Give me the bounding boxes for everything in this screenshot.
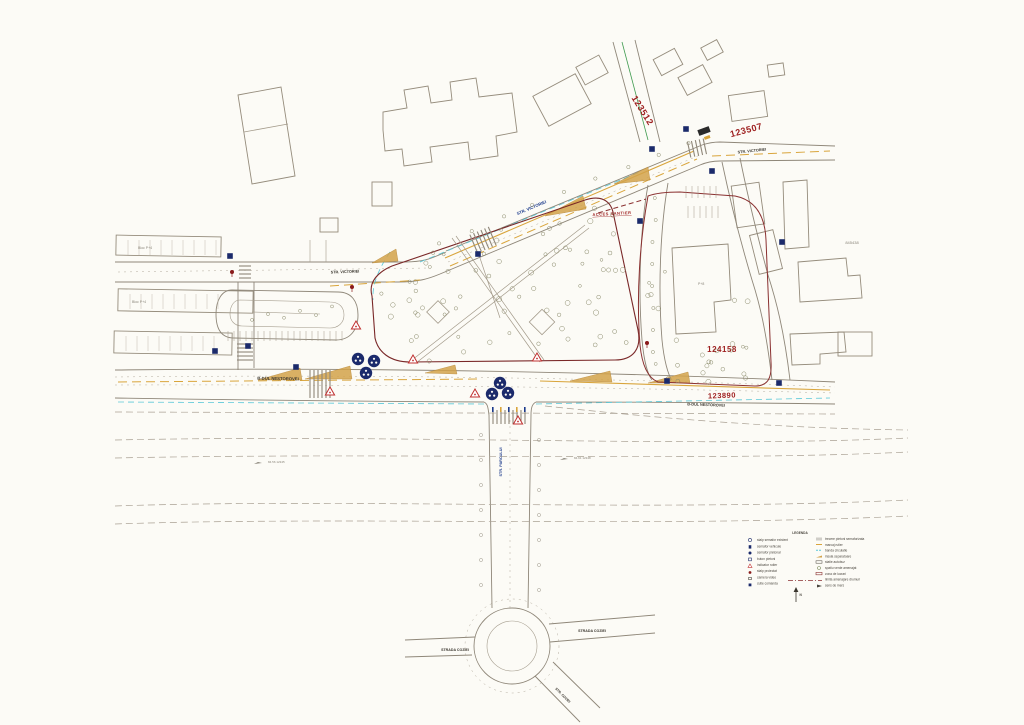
- legend-item-label: statie autobuz: [825, 560, 845, 564]
- direction-arrow-icon: [817, 585, 822, 588]
- bloc-label-b: Bloc P+4: [132, 300, 146, 304]
- street-label-nestorovei-east: B-DUL NESTOROVEI: [687, 402, 725, 407]
- park-diamond-1: [427, 301, 450, 324]
- signal-box-icon: [683, 126, 689, 132]
- control-box-icon: [749, 584, 752, 587]
- elevation-arrow-west: [254, 462, 262, 464]
- parcel-label-123512: 123512: [630, 94, 656, 127]
- bus-loop: [216, 290, 358, 340]
- marker-icon: [645, 341, 649, 348]
- street-label-coziei-east: STRADA COZIEI: [578, 629, 606, 633]
- park-diamond-2: [529, 309, 554, 334]
- street-label-victoriei-diagonal: STR. VICTORIEI: [516, 199, 547, 216]
- legend-item-label: stalp semafor existent: [757, 538, 788, 542]
- vehicle-signal-icon: [749, 545, 752, 548]
- signal-box-icon: [245, 343, 251, 349]
- legend-item-label: sens de mers: [825, 583, 845, 587]
- new-pole-icon: [749, 571, 752, 574]
- legend-item-label: stalp proiectat: [757, 569, 777, 573]
- warning-triangle-icon: [351, 321, 360, 329]
- signal-box-icon: [212, 348, 218, 354]
- island-icon: [816, 556, 822, 558]
- legend-title: LEGENDA: [792, 531, 808, 535]
- parcel-label-123890: 123890: [708, 391, 736, 401]
- street-label-coziei-se: STR. COZIEI: [554, 687, 571, 704]
- street-label-victoriei-left: STR. VICTORIEI: [331, 270, 360, 275]
- signal-box-icon: [227, 253, 233, 259]
- buildings-layer: [114, 40, 872, 365]
- bloc-label-c: P+8: [698, 282, 704, 286]
- signal-head-icon: [360, 367, 372, 379]
- elevation-arrow-east: [560, 458, 568, 460]
- signal-head-icon: [494, 377, 506, 389]
- warning-triangle-icon: [408, 355, 417, 363]
- street-label-nestorovei-west: B-DUL NESTOROVEI: [257, 376, 299, 382]
- parcel-label-845438: 845438: [845, 240, 859, 245]
- north-label: N: [800, 593, 803, 597]
- park-layer: [371, 192, 771, 386]
- legend-item-label: cutie comanda: [757, 582, 778, 586]
- legend-left-column: stalp semafor existent semafor vehicule …: [748, 538, 788, 586]
- map-canvas: 123512 123507 124158 123890 ACCES SANTIE…: [0, 0, 1024, 725]
- buildings-right: [731, 180, 872, 365]
- elevation-label-west: 84.56 12345: [268, 460, 285, 464]
- signal-box-icon: [649, 146, 655, 152]
- signal-head-icon: [502, 387, 514, 399]
- signal-box-icon: [664, 378, 670, 384]
- signal-box-icon: [779, 239, 785, 245]
- signal-box-icon: [475, 251, 481, 257]
- signal-box-icon: [709, 168, 715, 174]
- park-boundary: [371, 198, 639, 362]
- signal-head-icon: [368, 355, 380, 367]
- green-space-icon: [818, 567, 821, 570]
- building-inner-line: [244, 124, 288, 132]
- signal-head-icon: [352, 353, 364, 365]
- road-sign-icon: [748, 564, 752, 567]
- works-boundary: [638, 192, 771, 386]
- elevation-label-east: 84.61 12348: [574, 456, 591, 460]
- north-arrow: N: [794, 587, 803, 602]
- building-small-2: [320, 218, 338, 232]
- camera-icon: [749, 578, 752, 580]
- warning-triangle-icon: [325, 387, 334, 395]
- building-topcenter: [383, 78, 517, 166]
- park-paths: [412, 225, 589, 363]
- signal-head-icon: [486, 388, 498, 400]
- crosswalk-icon: [817, 538, 821, 541]
- ped-button-icon: [749, 558, 752, 561]
- bus-stop-icon: [816, 561, 822, 563]
- works-zone-icon: [816, 572, 822, 574]
- stop-bar: [697, 126, 710, 136]
- building-topleft: [238, 87, 295, 184]
- symbols-layer: [126, 126, 785, 591]
- legend-item-label: trecere pietoni semaforizata: [825, 537, 865, 541]
- legend-item-label: zona de lucrari: [825, 572, 846, 576]
- legend-item-label: indicator rutier: [757, 563, 778, 567]
- legend-right-column: trecere pietoni semaforizata marcaj ruti…: [788, 537, 865, 588]
- crosswalk: [239, 266, 251, 278]
- ped-signal-icon: [749, 552, 752, 555]
- crosswalk: [688, 139, 707, 158]
- legend-item-label: semafor vehicule: [757, 544, 781, 548]
- lane-arrow: [704, 135, 711, 140]
- legend-item-label: marcaj rutier: [825, 543, 844, 547]
- building-block-center: [672, 244, 731, 334]
- signal-box-icon: [776, 380, 782, 386]
- street-label-parcului: STR. PARCULUI: [499, 447, 503, 476]
- building-small: [372, 182, 392, 206]
- legend-item-label: semafor pietonal: [757, 551, 781, 555]
- signal-box-icon: [637, 218, 643, 224]
- legend-item-label: spatiu verde amenajat: [825, 566, 856, 570]
- buildings-topright-cluster: [533, 40, 785, 127]
- legend-item-label: limita amenajare drumuri: [825, 578, 860, 582]
- legend-item-label: buton pietoni: [757, 557, 776, 561]
- signal-box-icon: [293, 364, 299, 370]
- site-plan-page: 123512 123507 124158 123890 ACCES SANTIE…: [0, 0, 1024, 725]
- legend: LEGENDA stalp semafor existent semafor v…: [748, 531, 865, 602]
- warning-triangle-icon: [470, 389, 479, 397]
- legend-item-label: banda circulatie: [825, 549, 848, 553]
- legend-item-label: camera video: [757, 575, 776, 579]
- parcel-label-123507: 123507: [729, 121, 764, 139]
- signal-pole-icon: [748, 538, 751, 541]
- street-label-coziei-west: STRADA COZIEI: [441, 648, 469, 652]
- buildings-left-strips: [114, 235, 253, 355]
- crosswalk: [470, 227, 496, 253]
- legend-item-label: insula separatoare: [825, 554, 851, 558]
- marker-icon: [350, 285, 354, 292]
- marker-icon: [230, 270, 234, 277]
